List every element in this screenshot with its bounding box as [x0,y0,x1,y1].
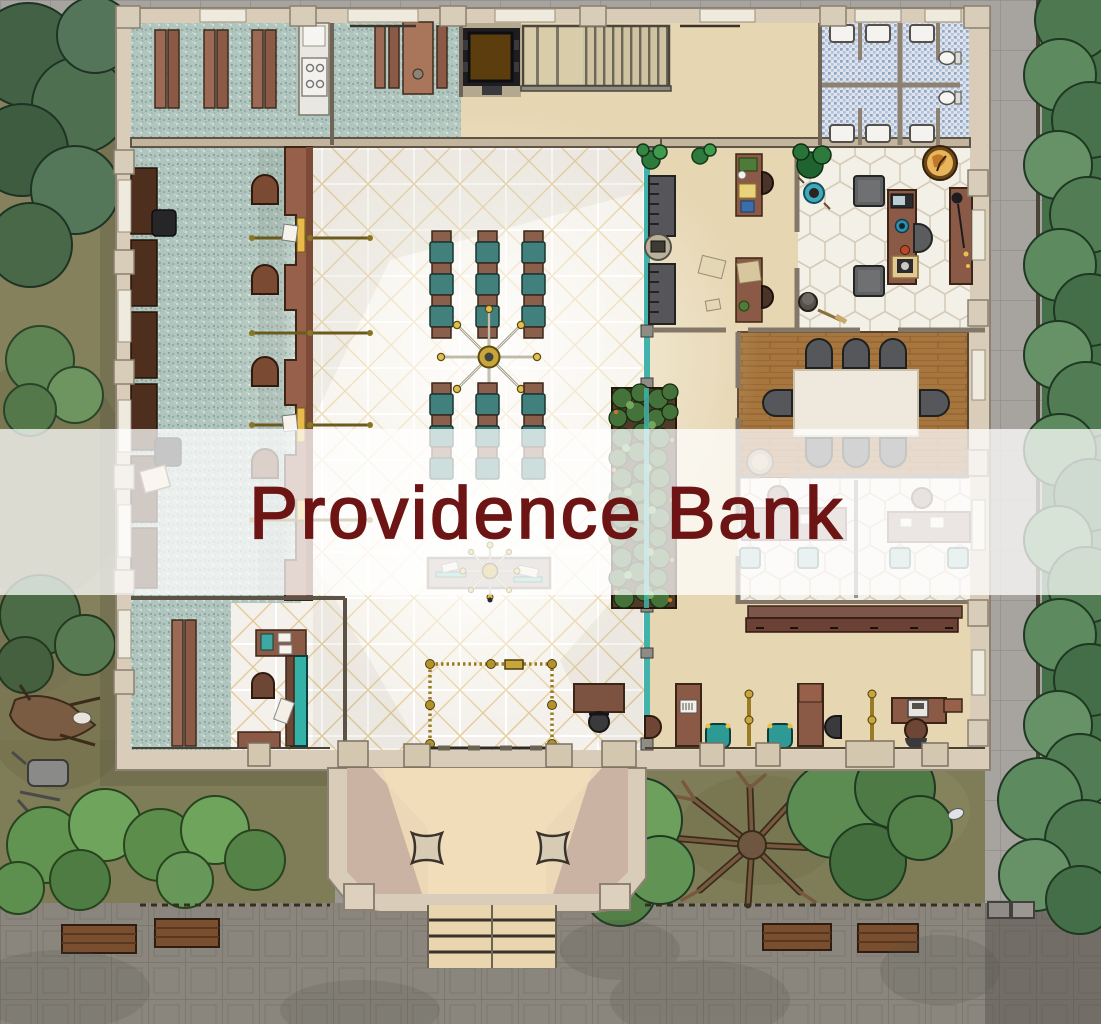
svg-text:Providence Bank: Providence Bank [249,473,844,554]
